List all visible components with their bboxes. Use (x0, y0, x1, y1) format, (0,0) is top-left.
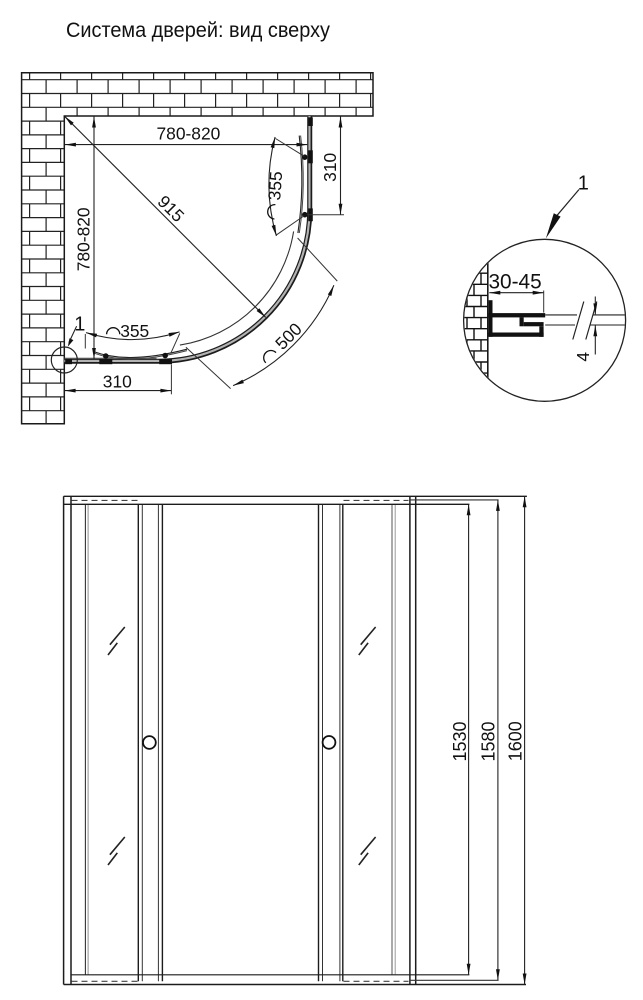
svg-text:355: 355 (120, 321, 149, 341)
svg-text:30-45: 30-45 (488, 271, 541, 294)
svg-text:1: 1 (74, 313, 85, 335)
svg-text:1600: 1600 (505, 721, 525, 761)
svg-text:1: 1 (578, 173, 589, 195)
svg-text:310: 310 (320, 153, 340, 182)
svg-text:1580: 1580 (478, 721, 498, 761)
svg-text:780-820: 780-820 (73, 207, 93, 271)
svg-text:780-820: 780-820 (156, 124, 220, 144)
svg-text:355: 355 (264, 171, 286, 201)
svg-text:Система дверей: вид сверху: Система дверей: вид сверху (66, 18, 330, 42)
svg-text:1530: 1530 (450, 721, 470, 761)
svg-text:4: 4 (573, 352, 593, 362)
svg-text:310: 310 (103, 371, 132, 391)
